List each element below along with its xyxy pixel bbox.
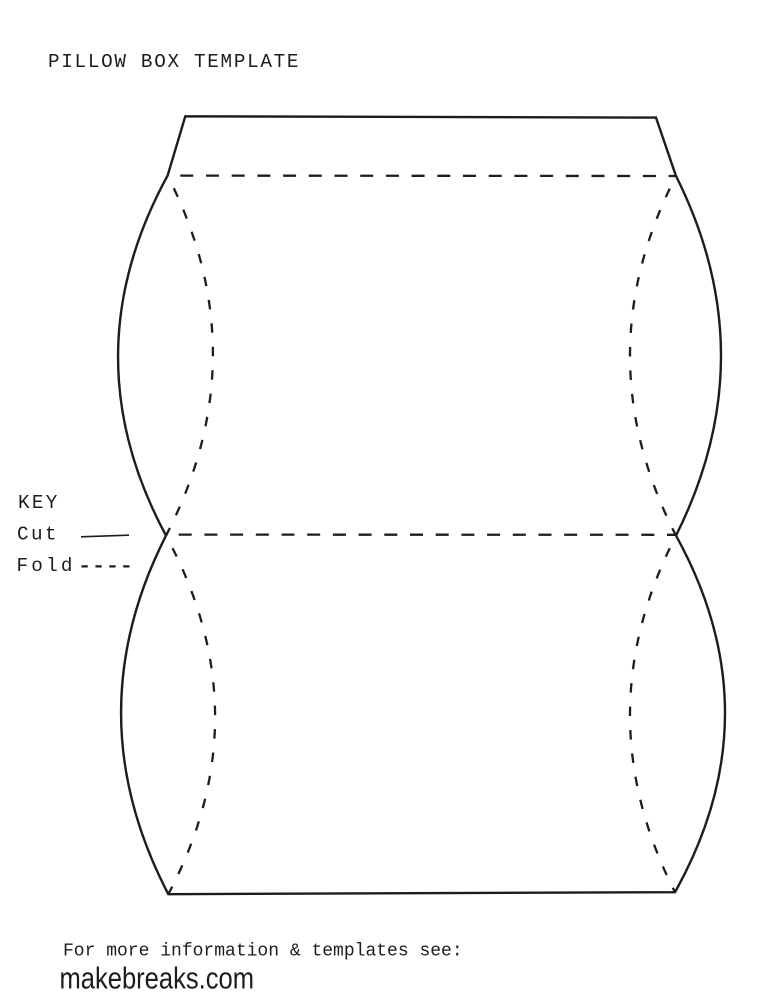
svg-text:Cut: Cut [17, 524, 57, 546]
svg-text:For more information & templat: For more information & templates see: [63, 942, 463, 962]
svg-text:PILLOW BOX TEMPLATE: PILLOW BOX TEMPLATE [48, 51, 299, 73]
svg-text:Fold: Fold [17, 555, 73, 577]
svg-text:KEY: KEY [18, 492, 58, 514]
svg-text:makebreaks.com: makebreaks.com [60, 960, 255, 995]
